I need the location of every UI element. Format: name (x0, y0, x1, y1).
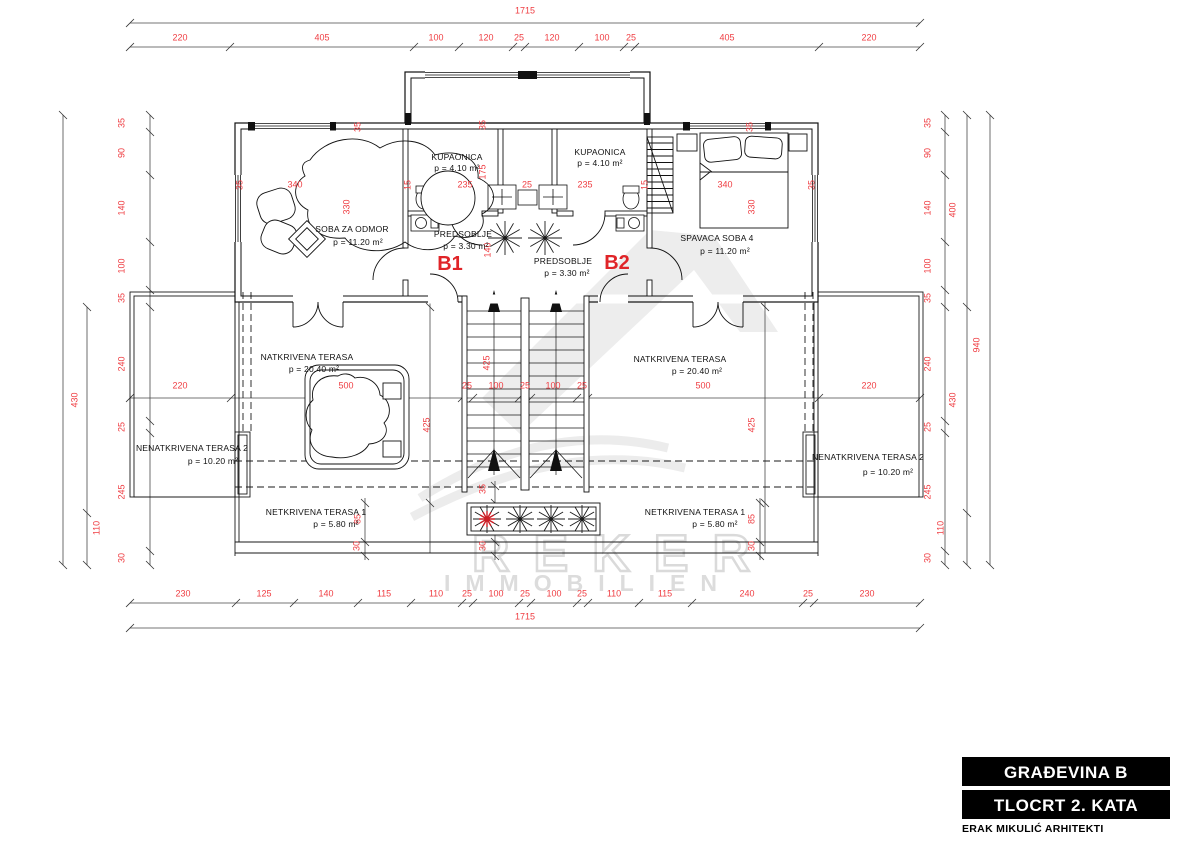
lounge-furniture (254, 139, 494, 257)
architect-name: ERAK MIKULIĆ ARHITEKTI (962, 823, 1170, 835)
jacuzzi (305, 365, 409, 469)
floor-plan-drawing (0, 0, 1200, 843)
plant-icon (488, 221, 522, 255)
title-block: GRAĐEVINA B TLOCRT 2. KATA ERAK MIKULIĆ … (962, 757, 1170, 835)
bedroom-furniture (647, 133, 807, 228)
plant-icon (528, 221, 562, 255)
bed (700, 133, 788, 228)
round-table (421, 171, 475, 225)
nightstand (789, 134, 807, 151)
building-name-badge: GRAĐEVINA B (962, 757, 1170, 786)
side-table (289, 221, 326, 258)
nightstand (677, 134, 697, 151)
drawing-name-badge: TLOCRT 2. KATA (962, 790, 1170, 819)
stairs-up-arrow (550, 448, 562, 471)
